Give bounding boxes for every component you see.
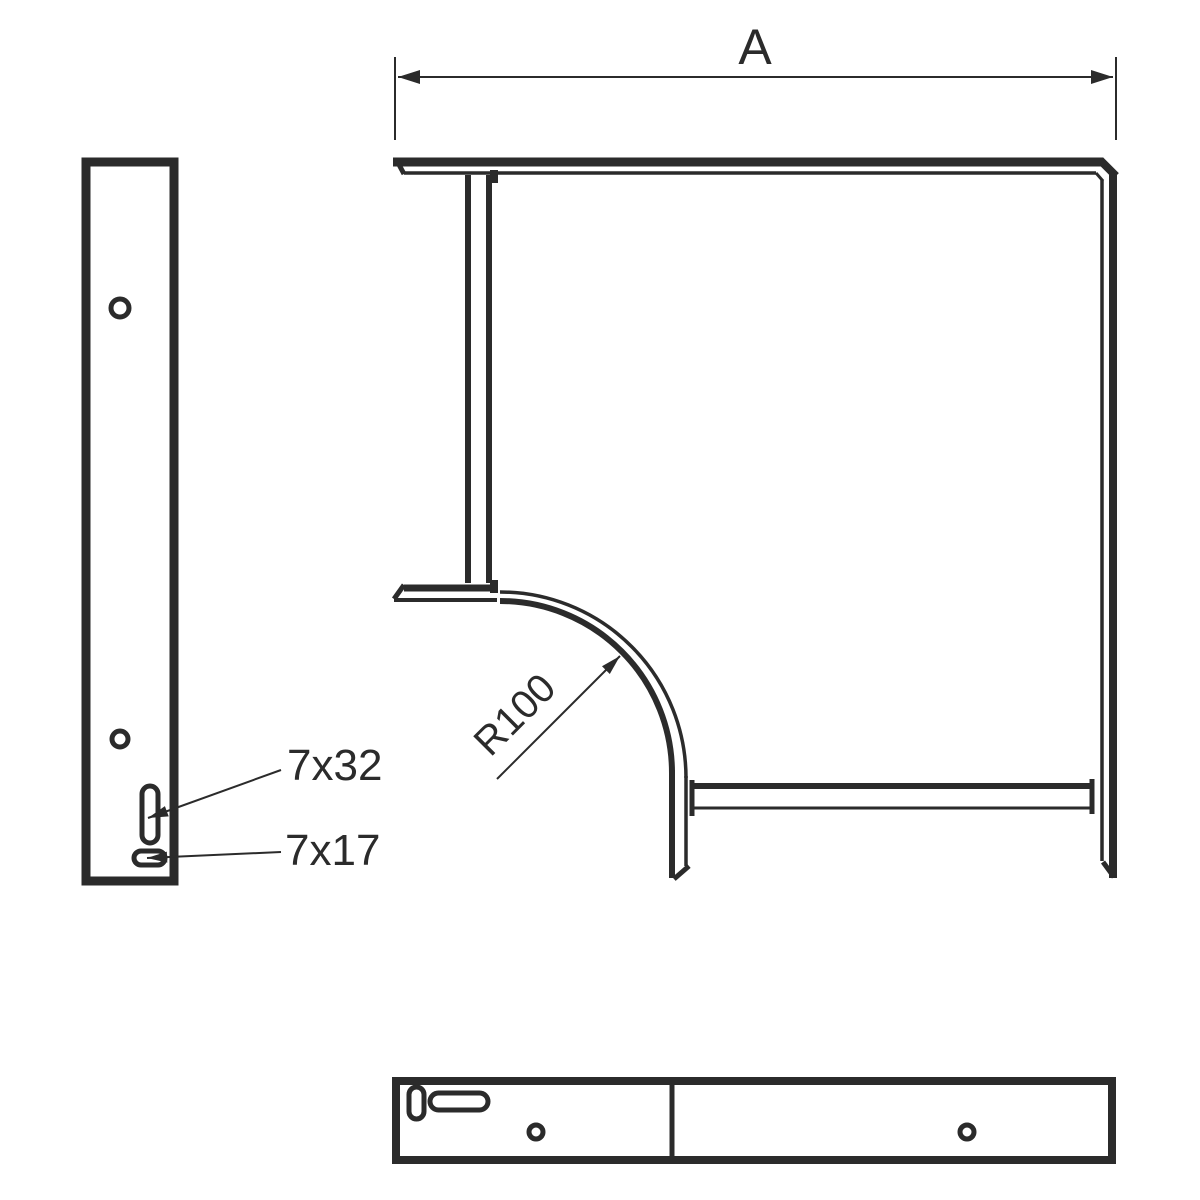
side-view-hole-top [111,299,129,317]
bottom-view [396,1078,1112,1160]
main-view-bend [393,159,1116,879]
side-view-hole-bottom [112,731,128,747]
dimension-arrowhead-left-icon [398,70,420,84]
leader-7x32-line [148,770,281,818]
dimension-a-label: A [730,22,780,72]
side-view [86,162,174,881]
inner-rail-foot-bevel [394,585,404,599]
slot-7x32-label: 7x32 [287,744,382,788]
slot-7x17-label: 7x17 [285,829,380,873]
bottom-view-outline [396,1081,1112,1160]
bottom-view-slot-horizontal [430,1093,488,1110]
technical-drawing-canvas: A R100 7x32 7x17 [0,0,1200,1200]
bend-corner-bevel-inner [1096,173,1103,181]
bottom-view-hole-left [529,1125,543,1139]
slot-label-leaders [147,770,281,863]
dimension-arrowhead-right-icon [1091,70,1113,84]
side-view-outline [86,162,174,881]
bottom-view-hole-right [960,1125,974,1139]
leader-7x17-line [147,852,281,858]
fold-step-curve [490,580,498,593]
fold-step-top [490,170,498,183]
drawing-linework [0,0,1200,1200]
inner-rail-foot-bevel-bottom [674,866,689,879]
bottom-view-slot-vertical [409,1087,424,1119]
